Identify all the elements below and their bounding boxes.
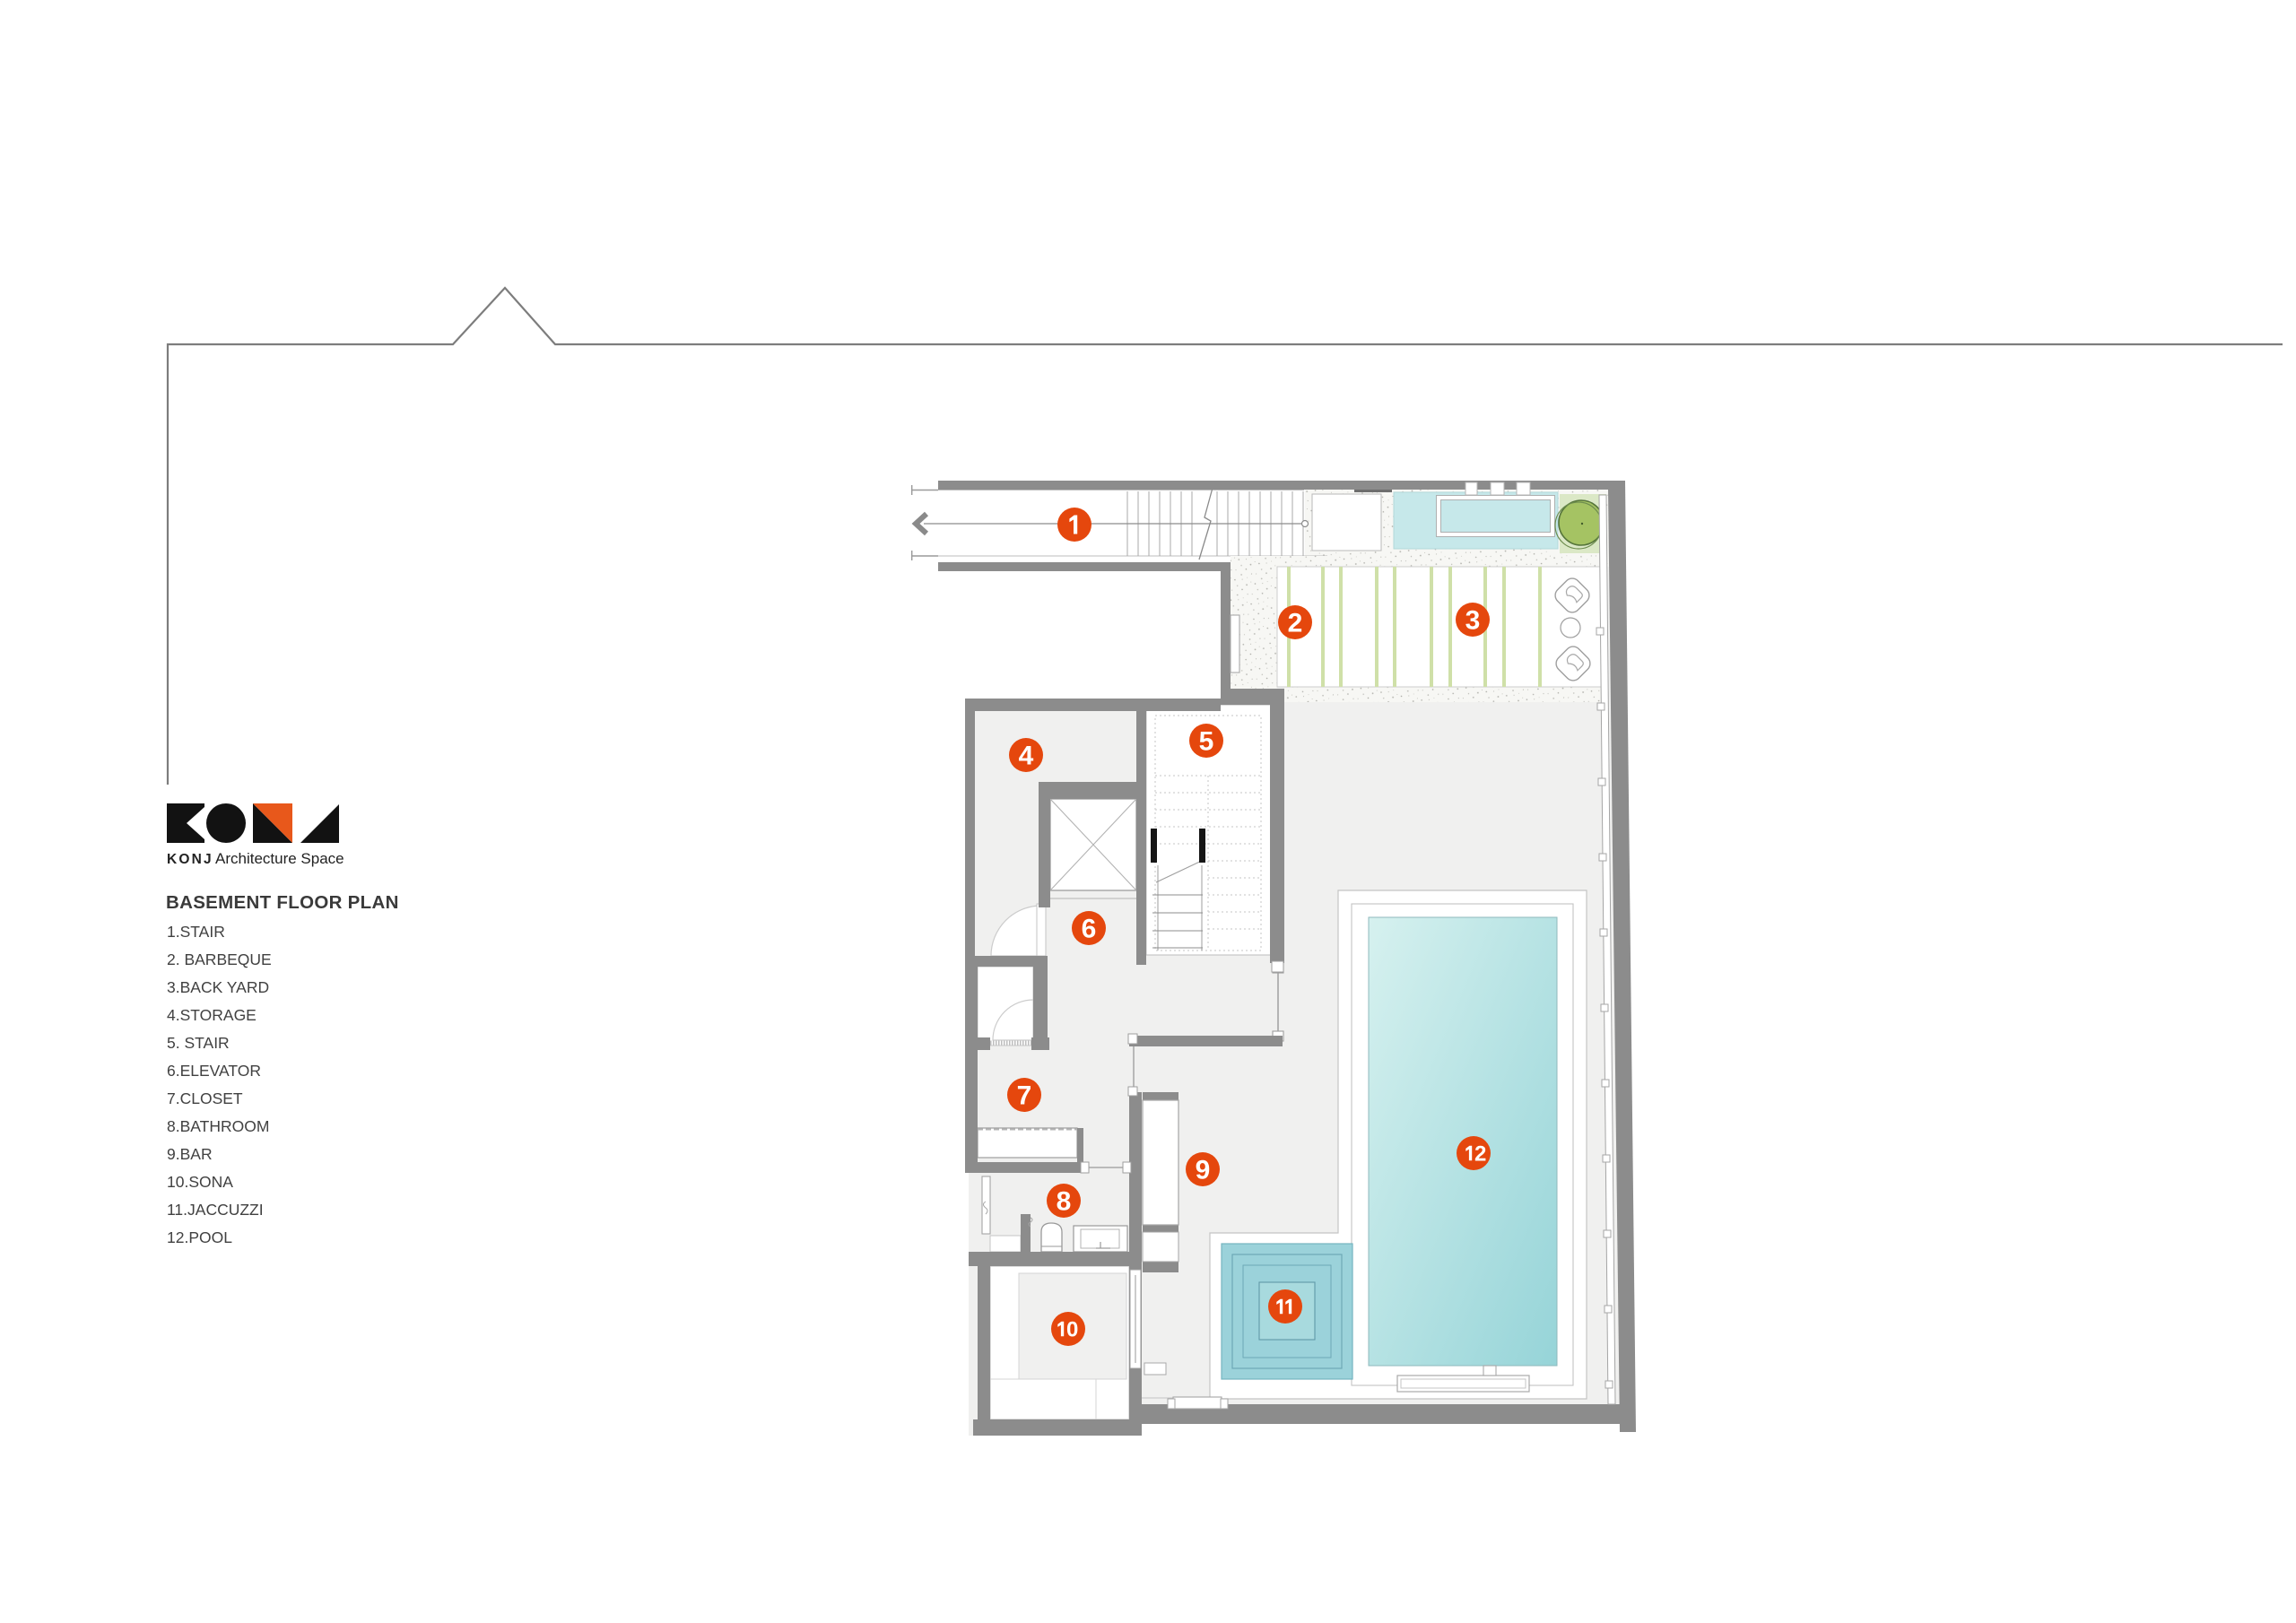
svg-text:BASEMENT FLOOR PLAN: BASEMENT FLOOR PLAN — [166, 892, 399, 913]
svg-text:Architecture Space: Architecture Space — [215, 850, 344, 867]
svg-text:2: 2 — [1288, 609, 1303, 638]
svg-text:1.STAIR: 1.STAIR — [167, 923, 225, 941]
svg-text:12.POOL: 12.POOL — [167, 1228, 232, 1246]
svg-text:7.CLOSET: 7.CLOSET — [167, 1089, 243, 1107]
svg-text:6.ELEVATOR: 6.ELEVATOR — [167, 1062, 261, 1080]
svg-text:2. BARBEQUE: 2. BARBEQUE — [167, 950, 272, 968]
svg-text:3.BACK YARD: 3.BACK YARD — [167, 978, 269, 996]
svg-text:8.BATHROOM: 8.BATHROOM — [167, 1117, 269, 1135]
svg-text:11.JACCUZZI: 11.JACCUZZI — [167, 1201, 264, 1219]
svg-text:7: 7 — [1017, 1081, 1032, 1111]
svg-text:4: 4 — [1019, 742, 1034, 771]
svg-text:KONJ: KONJ — [167, 852, 213, 867]
svg-text:5. STAIR: 5. STAIR — [167, 1034, 230, 1052]
svg-text:4.STORAGE: 4.STORAGE — [167, 1006, 257, 1024]
svg-text:3: 3 — [1465, 606, 1481, 636]
svg-text:9: 9 — [1196, 1156, 1211, 1185]
svg-text:8: 8 — [1057, 1187, 1072, 1217]
svg-text:6: 6 — [1082, 915, 1097, 944]
svg-text:9.BAR: 9.BAR — [167, 1145, 213, 1163]
svg-text:10.SONA: 10.SONA — [167, 1173, 233, 1191]
svg-text:0: 0 — [1066, 1318, 1078, 1342]
svg-text:2: 2 — [1474, 1142, 1486, 1167]
svg-text:5: 5 — [1199, 727, 1214, 757]
